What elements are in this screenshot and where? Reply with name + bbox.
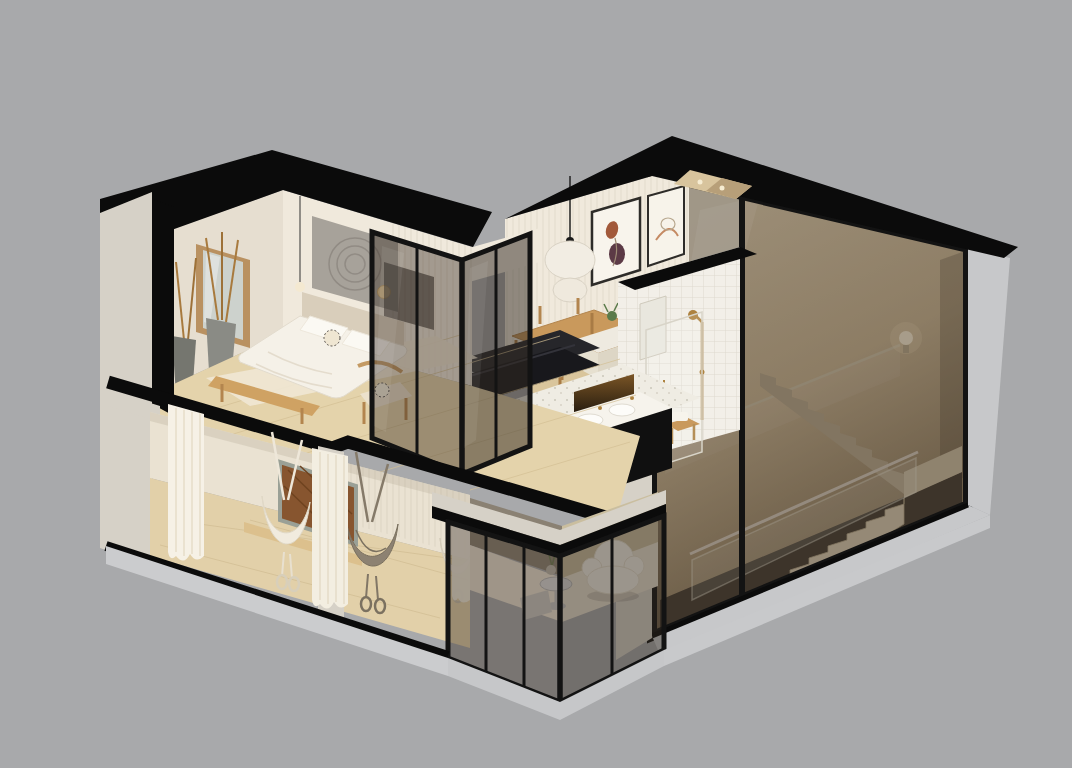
ceiling-light-icon	[698, 180, 703, 185]
basin-right	[609, 404, 635, 416]
art-print-small	[648, 186, 684, 266]
pendant-bulb-icon	[295, 282, 305, 292]
curtain-middle	[312, 448, 348, 609]
ceiling-light-icon-2	[720, 186, 725, 191]
left-facade-cut-wall	[100, 192, 152, 566]
patterned-cushion	[324, 330, 340, 346]
render-canvas	[0, 0, 1072, 768]
apartment-cutaway-render	[0, 0, 1072, 768]
curtain-left	[168, 404, 204, 561]
glass-wardrobe-box	[372, 232, 530, 474]
towel	[672, 412, 688, 421]
island-plant-icon	[607, 311, 617, 321]
art-print-large	[592, 198, 640, 285]
left-wall-shadow-band	[152, 199, 174, 416]
